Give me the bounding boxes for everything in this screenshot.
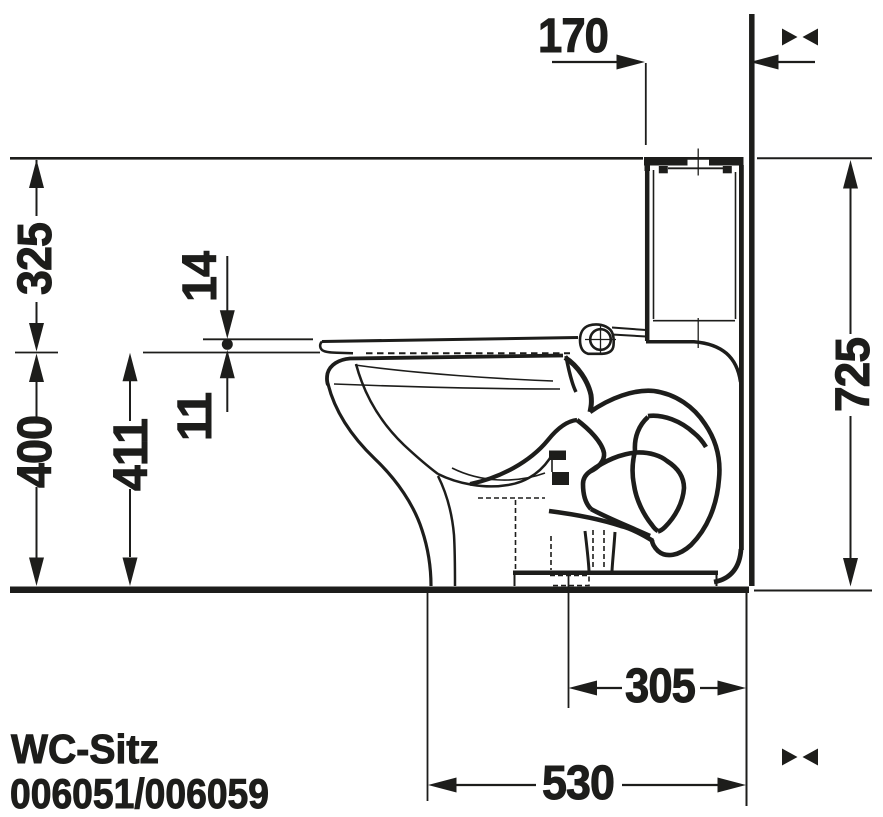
svg-text:411: 411	[105, 419, 158, 491]
svg-text:725: 725	[827, 338, 880, 412]
svg-text:14: 14	[174, 251, 227, 302]
svg-text:11: 11	[169, 393, 222, 441]
svg-text:325: 325	[9, 223, 62, 295]
svg-text:305: 305	[625, 660, 695, 713]
svg-text:530: 530	[542, 757, 614, 810]
svg-text:400: 400	[9, 416, 62, 488]
svg-text:WC-Sitz: WC-Sitz	[11, 726, 159, 772]
svg-text:006051/006059: 006051/006059	[10, 770, 269, 817]
svg-text:170: 170	[538, 10, 608, 63]
